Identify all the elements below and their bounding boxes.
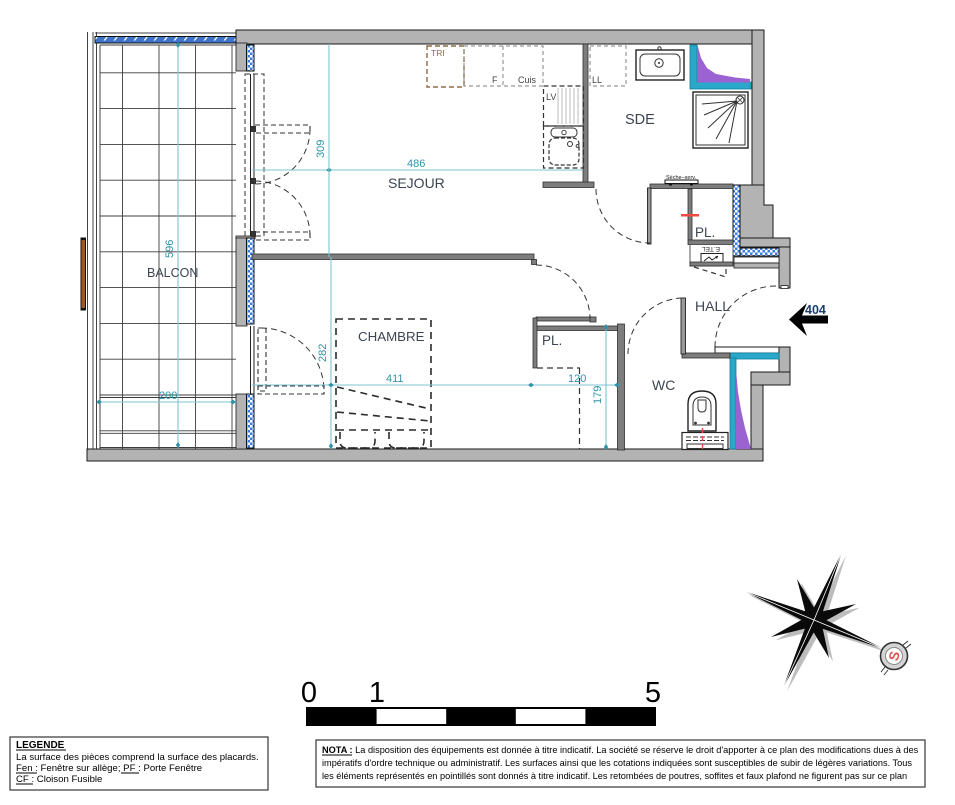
svg-text:200: 200 — [159, 390, 177, 402]
svg-text:1: 1 — [369, 677, 385, 709]
svg-text:SEJOUR: SEJOUR — [388, 175, 445, 191]
svg-text:LV: LV — [546, 92, 556, 102]
svg-text:120: 120 — [568, 373, 586, 385]
svg-text:PL.: PL. — [542, 333, 562, 348]
svg-text:486: 486 — [407, 158, 425, 170]
svg-text:HALL: HALL — [695, 298, 730, 314]
svg-text:411: 411 — [386, 373, 404, 385]
svg-text:NOTA : La disposition des équi: NOTA : La disposition des équipements es… — [322, 745, 919, 755]
svg-text:La surface des pièces comprend: La surface des pièces comprend la surfac… — [16, 752, 259, 763]
svg-text:0: 0 — [301, 677, 317, 709]
svg-text:LL: LL — [592, 75, 602, 85]
svg-text:404: 404 — [805, 303, 826, 317]
svg-text:impératifs d'ordre technique o: impératifs d'ordre technique ou administ… — [322, 758, 912, 768]
svg-text:309: 309 — [315, 140, 327, 158]
svg-text:CHAMBRE: CHAMBRE — [358, 329, 425, 344]
svg-text:LEGENDE: LEGENDE — [16, 740, 65, 751]
svg-text:5: 5 — [645, 677, 661, 709]
svg-text:Fen : Fenêtre sur allège; PF :: Fen : Fenêtre sur allège; PF : Porte Fen… — [16, 763, 202, 774]
svg-text:179: 179 — [592, 386, 604, 404]
svg-text:CF : Cloison Fusible: CF : Cloison Fusible — [16, 774, 102, 785]
svg-text:596: 596 — [164, 240, 176, 258]
svg-text:E.TEL: E.TEL — [702, 245, 720, 252]
svg-text:WC: WC — [652, 377, 675, 393]
svg-text:TRI: TRI — [431, 48, 445, 58]
svg-text:Cuis: Cuis — [518, 75, 537, 85]
svg-text:PL.: PL. — [695, 225, 715, 240]
svg-text:F: F — [492, 75, 498, 85]
svg-text:SDE: SDE — [625, 112, 655, 128]
svg-text:282: 282 — [317, 344, 329, 362]
svg-text:les éléments représentés en po: les éléments représentés en pointillés s… — [322, 771, 907, 781]
svg-text:BALCON: BALCON — [147, 266, 198, 280]
